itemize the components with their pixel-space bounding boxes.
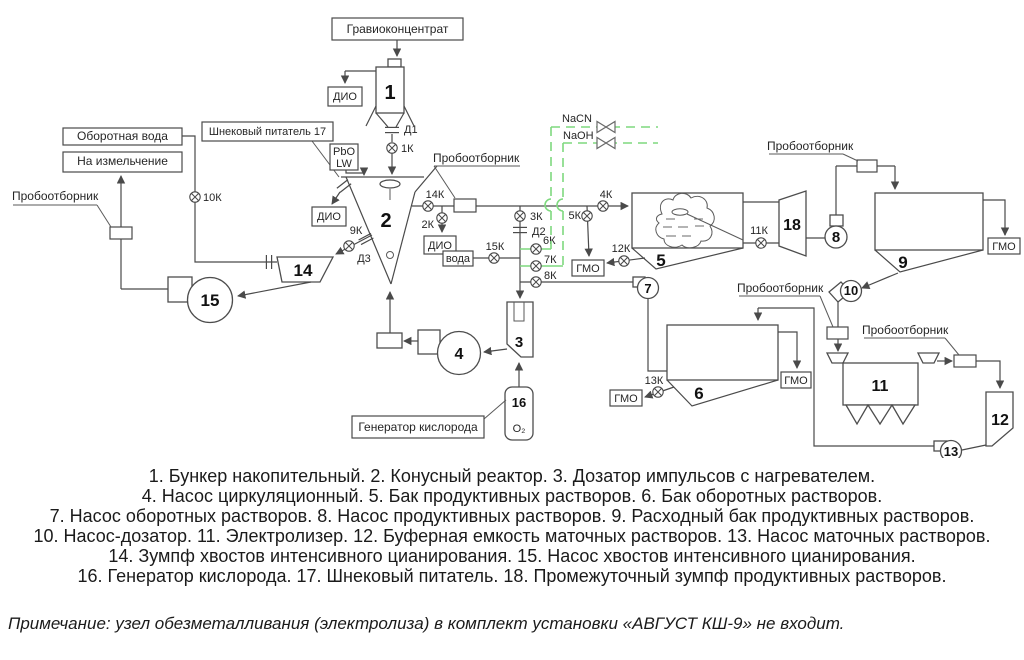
screw-feeder-17: Шнековый питатель 17 ДИО — [202, 122, 351, 226]
flange-d1 — [385, 127, 399, 132]
pump-4: 4 — [377, 292, 481, 375]
gmo-label-d: ГМО — [614, 393, 638, 405]
sampler-2-label: Пробоотборник — [433, 151, 520, 165]
valve-12k-label: 12К — [612, 243, 631, 255]
dio-label-3: ДИО — [428, 240, 452, 252]
tank-6: 6 ГМО 13К ГМО — [610, 325, 811, 406]
screw-feeder-callout-label: Шнековый питатель 17 — [209, 126, 326, 138]
equip-13: 13 — [944, 444, 958, 458]
legend-line-4: 10. Насос-дозатор. 11. Электролизер. 12.… — [0, 526, 1024, 546]
valve-1k — [387, 143, 397, 153]
legend-line-6: 16. Генератор кислорода. 17. Шнековый пи… — [0, 566, 1024, 586]
legend-line-3: 7. Насос оборотных растворов. 8. Насос п… — [0, 506, 1024, 526]
naoh-valve — [597, 138, 615, 149]
valve-10k-label: 10К — [203, 192, 222, 204]
valve-4k-label: 4К — [600, 189, 613, 201]
equip-11: 11 — [872, 378, 889, 395]
valve-2k-label: 2К — [421, 219, 434, 231]
valve-6k — [531, 244, 541, 254]
valve-5k — [582, 211, 592, 221]
valve-2k — [437, 213, 447, 223]
sampler-3-label: Пробоотборник — [767, 139, 854, 153]
valve-7k — [531, 261, 541, 271]
naoh-label: NaOH — [563, 130, 594, 142]
valve-10k — [190, 192, 200, 202]
pump-7: 7 — [633, 277, 667, 371]
valve-d3-label: Д3 — [357, 253, 371, 265]
valve-6k-label: 6К — [543, 235, 556, 247]
equip-16: 16 — [512, 395, 526, 410]
dosing-column: 3К Д2 6К 7К 15К вода 8К — [443, 206, 633, 298]
gravioconcentrate-feed: Гравиоконцентрат — [332, 18, 463, 56]
to-grinding-label: На измельчение — [77, 154, 168, 168]
equip-10: 10 — [844, 283, 858, 298]
sampler-5 — [954, 355, 976, 367]
gravioconcentrate-label: Гравиоконцентрат — [347, 22, 449, 36]
equip-5: 5 — [656, 251, 665, 270]
buffer-vessel-12: 12 — [986, 392, 1013, 446]
valve-12k — [619, 256, 629, 266]
gmo-label-b: ГМО — [992, 241, 1016, 253]
valve-4k — [598, 201, 608, 211]
valve-9k — [344, 241, 354, 251]
equip-12: 12 — [991, 412, 1009, 429]
legend-line-1: 1. Бункер накопительный. 2. Конусный реа… — [0, 466, 1024, 486]
sampler-1 — [110, 227, 132, 239]
equip-15: 15 — [201, 291, 220, 310]
sampler-5-label: Пробоотборник — [862, 323, 949, 337]
valve-13k — [653, 387, 663, 397]
lw-label: LW — [336, 158, 352, 170]
valve-13k-label: 13К — [645, 375, 664, 387]
pulse-doser-3: 3 — [484, 302, 533, 357]
legend-line-2: 4. Насос циркуляционный. 5. Бак продукти… — [0, 486, 1024, 506]
oxygen-generator-16: 16 O₂ Генератор кислорода — [352, 363, 533, 440]
equip-4: 4 — [455, 346, 464, 363]
equip-6: 6 — [694, 384, 703, 403]
zump-14: 9К Д3 14 — [277, 225, 373, 282]
electrolyzer-11: 11 Пробоотборник — [827, 323, 1000, 424]
nacn-label: NaCN — [562, 113, 592, 125]
gmo-label-c: ГМО — [784, 375, 808, 387]
legend: 1. Бункер накопительный. 2. Конусный реа… — [0, 466, 1024, 586]
dio-label-2: ДИО — [317, 211, 341, 223]
valve-1k-label: 1К — [401, 143, 414, 155]
equip-14: 14 — [294, 261, 313, 280]
valve-3k — [515, 211, 525, 221]
valve-5k-label: 5К — [568, 210, 581, 222]
valve-11k — [756, 238, 766, 248]
equip-1: 1 — [384, 82, 395, 104]
process-flow-diagram: Гравиоконцентрат ДИО 1 Д1 1К Шнековый пи… — [0, 0, 1024, 458]
zump-18: 18 — [779, 191, 825, 256]
valve-7k-label: 7К — [544, 254, 557, 266]
equip-8: 8 — [832, 229, 840, 246]
nacn-valve — [597, 122, 615, 133]
legend-line-5: 14. Зумпф хвостов интенсивного цианирова… — [0, 546, 1024, 566]
equip-9: 9 — [898, 253, 907, 272]
tank-9: 9 ГМО — [875, 193, 1020, 272]
sampler-2 — [454, 199, 476, 212]
valve-14k-label: 14К — [426, 189, 445, 201]
equip-18: 18 — [783, 217, 801, 234]
sampler-4-label: Пробоотборник — [737, 281, 824, 295]
gmo-label-a: ГМО — [576, 263, 600, 275]
sampler-1-label: Пробоотборник — [12, 189, 99, 203]
valve-3k-label: 3К — [530, 211, 543, 223]
valve-11k-label: 11К — [750, 225, 768, 237]
sampler-3 — [857, 160, 877, 172]
equip-3: 3 — [515, 334, 523, 351]
sampler-4 — [827, 327, 848, 339]
dio-label-1: ДИО — [333, 91, 357, 103]
pump-15: 15 — [168, 277, 311, 323]
o2-label: O₂ — [513, 423, 526, 435]
branch-5k: 5К ГМО 4К — [568, 189, 612, 276]
water-label: вода — [446, 253, 471, 265]
oxygen-generator-callout-label: Генератор кислорода — [358, 420, 478, 434]
valve-9k-label: 9К — [350, 225, 363, 237]
pbo-feeder: PbO LW — [330, 144, 364, 175]
equip-7: 7 — [644, 281, 651, 296]
recycled-water-label: Оборотная вода — [77, 129, 168, 143]
pbo-label: PbO — [333, 146, 355, 158]
valve-15k-label: 15К — [486, 241, 505, 253]
valve-d1-label: Д1 — [404, 124, 418, 136]
equip-2: 2 — [380, 210, 391, 232]
screw-feeder-symbol — [337, 180, 351, 193]
recycled-water-section: 10К Оборотная вода На измельчение Пробоо… — [12, 128, 277, 289]
tank-5: 5 12К 11К — [607, 193, 779, 270]
valve-8k — [531, 277, 541, 287]
valve-8k-label: 8К — [544, 270, 557, 282]
valve-14k — [423, 201, 433, 211]
note: Примечание: узел обезметалливания (элект… — [8, 614, 1024, 634]
valve-15k — [489, 253, 499, 263]
feed-well — [380, 180, 400, 188]
